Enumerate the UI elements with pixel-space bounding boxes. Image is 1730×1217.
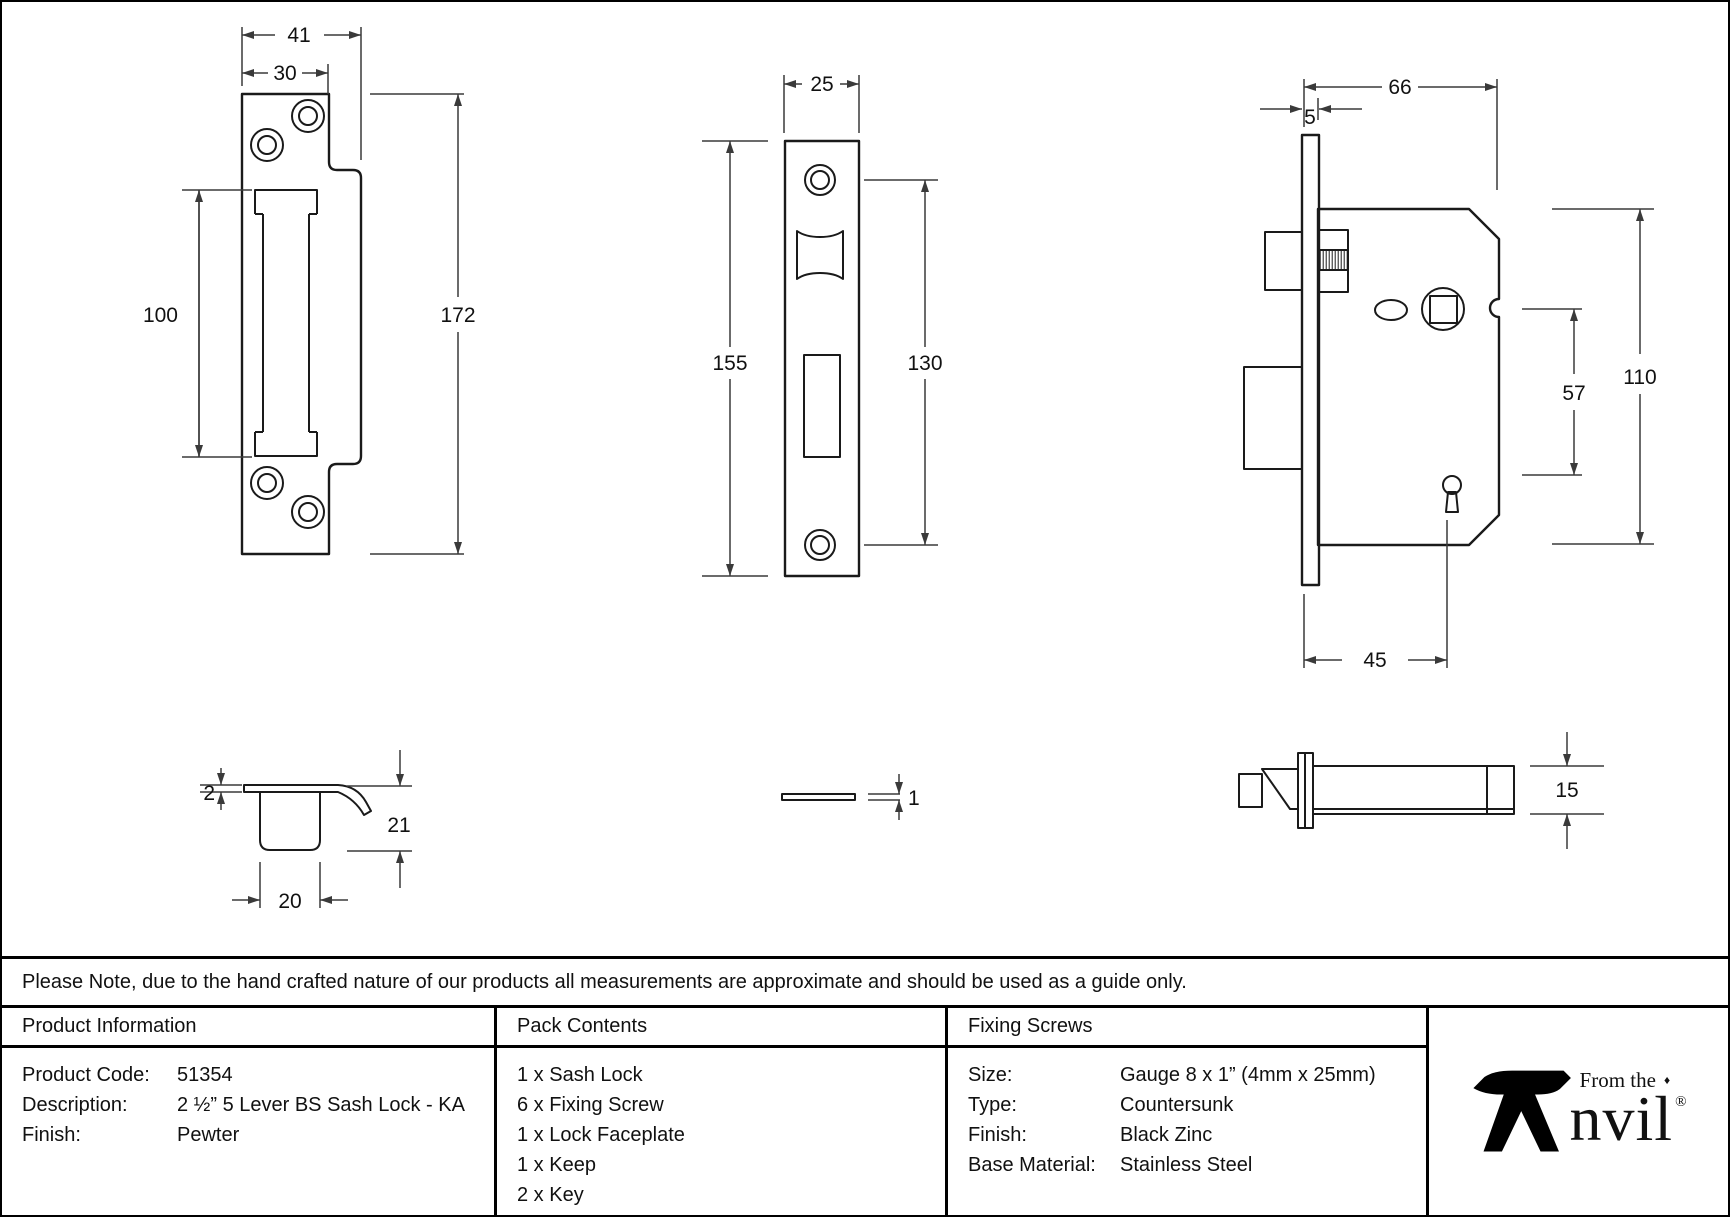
screw-material-value: Stainless Steel (1120, 1150, 1252, 1180)
screw-size-label: Size: (968, 1060, 1120, 1090)
dim-keep-depth: 21 (387, 814, 410, 837)
pack-contents-column: Pack Contents 1 x Sash Lock 6 x Fixing S… (497, 1008, 948, 1215)
dim-keep-height: 172 (440, 304, 475, 327)
screw-size-row: Size: Gauge 8 x 1” (4mm x 25mm) (968, 1060, 1414, 1090)
description-label: Description: (22, 1090, 177, 1120)
anvil-a-icon (1472, 1066, 1576, 1158)
technical-drawings: 41 30 100 172 (2, 2, 1730, 956)
fixing-screws-column: Fixing Screws Size: Gauge 8 x 1” (4mm x … (948, 1008, 1429, 1215)
dim-keep-plate-thickness: 2 (203, 782, 215, 805)
drawing-keep-front-view: 41 30 100 172 (143, 24, 476, 554)
screw-type-label: Type: (968, 1090, 1120, 1120)
logo-anvil-text: nvil (1570, 1083, 1674, 1154)
dim-lock-backset: 45 (1363, 649, 1386, 672)
description-row: Description: 2 ½” 5 Lever BS Sash Lock -… (22, 1090, 482, 1120)
screw-type-row: Type: Countersunk (968, 1090, 1414, 1120)
dim-faceplate-thickness: 1 (908, 787, 920, 810)
pack-item: 1 x Sash Lock (517, 1060, 933, 1090)
screw-material-row: Base Material: Stainless Steel (968, 1150, 1414, 1180)
dim-faceplate-screw-spacing: 130 (907, 352, 942, 375)
brand-column: From the ♦ nvil® (1429, 1008, 1728, 1215)
screw-finish-value: Black Zinc (1120, 1120, 1212, 1150)
dim-faceplate-height: 155 (712, 352, 747, 375)
drawing-lock-edge: 15 (1239, 732, 1604, 849)
keep-profile-dimensions: 2 21 20 (200, 750, 412, 913)
spindle-square (1430, 296, 1457, 323)
finish-row: Finish: Pewter (22, 1120, 482, 1150)
pack-item: 1 x Lock Faceplate (517, 1120, 933, 1150)
pack-item: 2 x Key (517, 1180, 933, 1210)
lock-edge-dimensions: 15 (1530, 732, 1604, 849)
screw-size-value: Gauge 8 x 1” (4mm x 25mm) (1120, 1060, 1376, 1090)
faceplate-latch-hole (797, 231, 843, 279)
keep-profile-box (260, 792, 320, 850)
dim-spindle-to-keyhole: 57 (1562, 382, 1585, 405)
faceplate-edge-bar (782, 794, 855, 800)
drawing-faceplate-front-view: 25 155 130 (702, 73, 943, 576)
pack-item: 6 x Fixing Screw (517, 1090, 933, 1120)
screw-finish-label: Finish: (968, 1120, 1120, 1150)
faceplate-outline (785, 141, 859, 576)
dim-keep-width-outer: 41 (287, 24, 310, 47)
dim-lock-faceplate-offset: 5 (1304, 106, 1316, 129)
product-information-header: Product Information (2, 1008, 494, 1048)
latch-spring-hatch (1320, 251, 1347, 269)
faceplate-bolt-slot (804, 355, 840, 457)
product-information-column: Product Information Product Code: 51354 … (2, 1008, 497, 1215)
lock-edge-latch-bevel (1262, 769, 1298, 809)
screw-type-value: Countersunk (1120, 1090, 1233, 1120)
product-spec-sheet: 41 30 100 172 (0, 0, 1730, 1217)
product-code-row: Product Code: 51354 (22, 1060, 482, 1090)
keyhole (1443, 476, 1461, 512)
keep-plate-outline (242, 94, 361, 554)
description-value: 2 ½” 5 Lever BS Sash Lock - KA (177, 1090, 465, 1120)
logo-text: From the ♦ nvil® (1570, 1068, 1686, 1145)
dim-keep-slot-height: 100 (143, 304, 178, 327)
note-text: Please Note, due to the hand crafted nat… (22, 971, 1187, 994)
faceplate-front-dimensions: 25 155 130 (702, 73, 943, 576)
dim-keep-width-inner: 30 (273, 62, 296, 85)
dim-lock-depth: 66 (1388, 76, 1411, 99)
pack-item: 1 x Keep (517, 1150, 933, 1180)
measurement-note: Please Note, due to the hand crafted nat… (2, 956, 1728, 1008)
from-the-anvil-logo: From the ♦ nvil® (1472, 1066, 1686, 1158)
drawing-lock-body-view: 66 5 110 57 45 (1244, 76, 1657, 672)
lock-faceplate (1302, 135, 1319, 585)
registered-mark: ® (1675, 1094, 1687, 1110)
dim-faceplate-width: 25 (810, 73, 833, 96)
oval-hole (1375, 300, 1407, 320)
product-code-value: 51354 (177, 1060, 233, 1090)
finish-value: Pewter (177, 1120, 239, 1150)
lock-edge-body (1313, 766, 1514, 814)
keep-screw-holes (251, 100, 324, 528)
pack-contents-header: Pack Contents (497, 1008, 945, 1048)
info-table: Product Information Product Code: 51354 … (2, 1008, 1728, 1215)
faceplate-edge-dimensions: 1 (868, 774, 920, 820)
lock-edge-latch (1239, 774, 1262, 807)
dim-lock-height: 110 (1623, 366, 1656, 389)
keep-strike-slot (255, 190, 317, 456)
drawing-faceplate-edge: 1 (782, 774, 920, 820)
deadbolt (1244, 367, 1302, 469)
fixing-screws-header: Fixing Screws (948, 1008, 1426, 1048)
dim-lock-edge-thickness: 15 (1555, 779, 1578, 802)
screw-finish-row: Finish: Black Zinc (968, 1120, 1414, 1150)
dim-keep-box-width: 20 (278, 890, 301, 913)
product-code-label: Product Code: (22, 1060, 177, 1090)
screw-material-label: Base Material: (968, 1150, 1120, 1180)
finish-label: Finish: (22, 1120, 177, 1150)
latch-bolt-front (1265, 232, 1302, 290)
keep-profile-plate (244, 785, 371, 815)
drawing-keep-profile: 2 21 20 (200, 750, 412, 913)
